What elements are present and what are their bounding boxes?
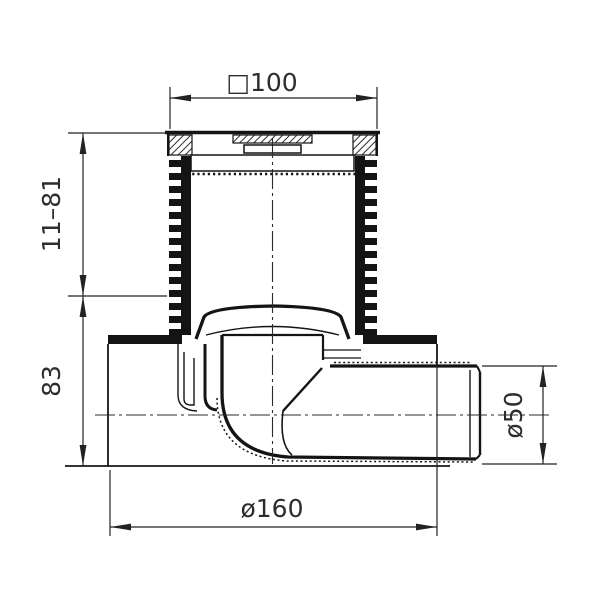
arrowhead-left — [170, 95, 191, 102]
body-flange-left — [108, 335, 182, 344]
elbow-edge — [283, 368, 322, 411]
frame-right-section — [353, 135, 376, 155]
drain-body — [65, 306, 476, 466]
outlet-socket-beads — [323, 350, 361, 358]
trap-clip-hook — [184, 352, 194, 405]
arrowhead-down — [80, 445, 87, 466]
frame-left-section — [169, 135, 192, 155]
center-axes — [95, 138, 552, 464]
dim-base-diameter-label: ø160 — [240, 494, 303, 523]
arrowhead-down — [540, 443, 547, 464]
dim-grate-width-label: □100 — [226, 68, 297, 97]
dim-body-height-label: 83 — [37, 365, 66, 397]
arrowhead-right — [356, 95, 377, 102]
arrowhead-left — [110, 524, 131, 531]
arrowhead-right — [416, 524, 437, 531]
elbow-curve — [282, 411, 292, 455]
arrowhead-up — [80, 133, 87, 154]
pipe-end-chamfer-bottom — [476, 455, 480, 459]
arrowhead-mid-up — [80, 296, 87, 317]
trap-bell-skirt — [205, 344, 217, 410]
dim-outlet-diameter-label: ø50 — [499, 391, 528, 438]
bowl-texture-line — [217, 398, 474, 462]
body-flange-right — [363, 335, 437, 344]
arrowhead-up — [540, 366, 547, 387]
riser-wall-left-ribbed — [169, 156, 191, 335]
dimension-base-diameter: ø160 — [110, 348, 437, 536]
outlet-pipe — [330, 363, 480, 460]
technical-drawing-canvas: □100 11–81 83 ø160 ø50 — [0, 0, 600, 600]
dimension-grate-width: □100 — [170, 68, 377, 129]
arrowhead-mid-down — [80, 275, 87, 296]
drawing-svg: □100 11–81 83 ø160 ø50 — [0, 0, 600, 600]
pipe-end-chamfer-top — [477, 366, 480, 372]
dim-height-adjust-label: 11–81 — [37, 176, 66, 252]
riser-wall-right-ribbed — [355, 156, 377, 335]
dimension-height-adjust: 11–81 83 — [37, 133, 167, 466]
